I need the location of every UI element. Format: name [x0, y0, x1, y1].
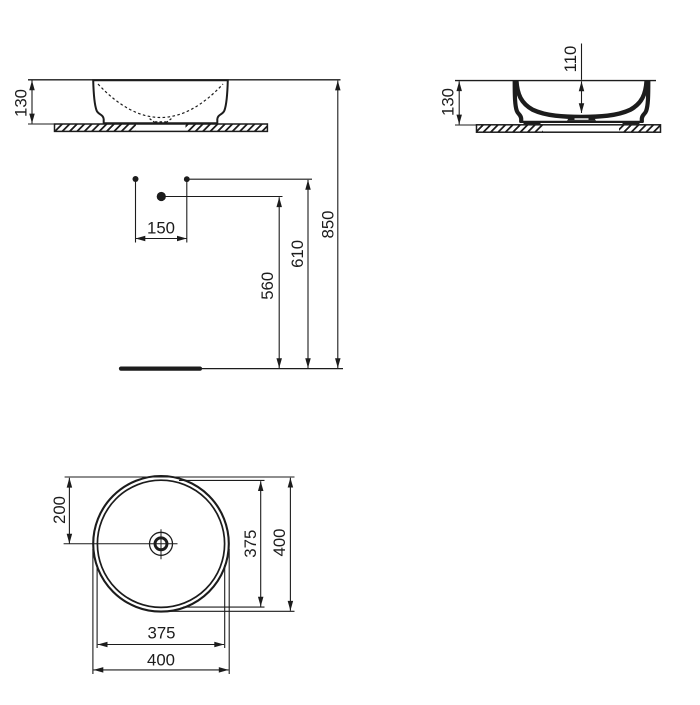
svg-text:400: 400 [270, 529, 289, 557]
svg-text:375: 375 [241, 530, 260, 558]
svg-text:150: 150 [147, 219, 175, 238]
svg-text:130: 130 [12, 89, 31, 117]
svg-text:560: 560 [258, 272, 277, 300]
svg-text:200: 200 [50, 496, 69, 524]
svg-text:400: 400 [147, 650, 175, 669]
svg-text:610: 610 [288, 240, 307, 268]
svg-text:850: 850 [318, 211, 337, 239]
svg-text:130: 130 [438, 88, 457, 116]
svg-text:375: 375 [148, 623, 176, 642]
svg-text:110: 110 [561, 46, 580, 73]
